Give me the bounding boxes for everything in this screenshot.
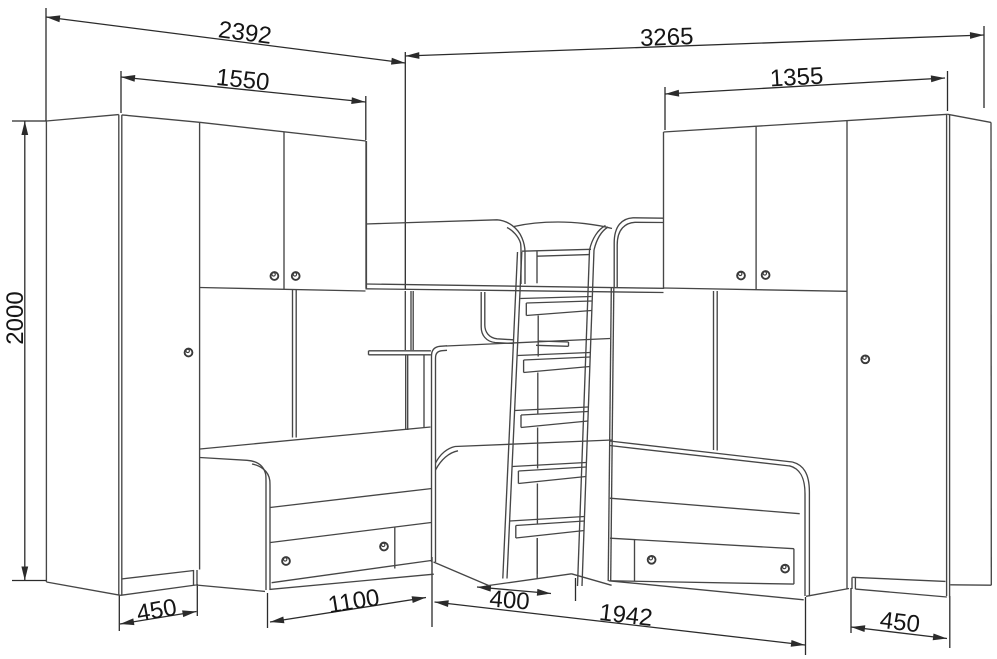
svg-text:450: 450 (878, 607, 921, 639)
svg-text:1355: 1355 (769, 62, 824, 92)
svg-text:3265: 3265 (640, 23, 694, 52)
svg-text:1550: 1550 (215, 64, 271, 96)
svg-text:2000: 2000 (2, 291, 29, 344)
